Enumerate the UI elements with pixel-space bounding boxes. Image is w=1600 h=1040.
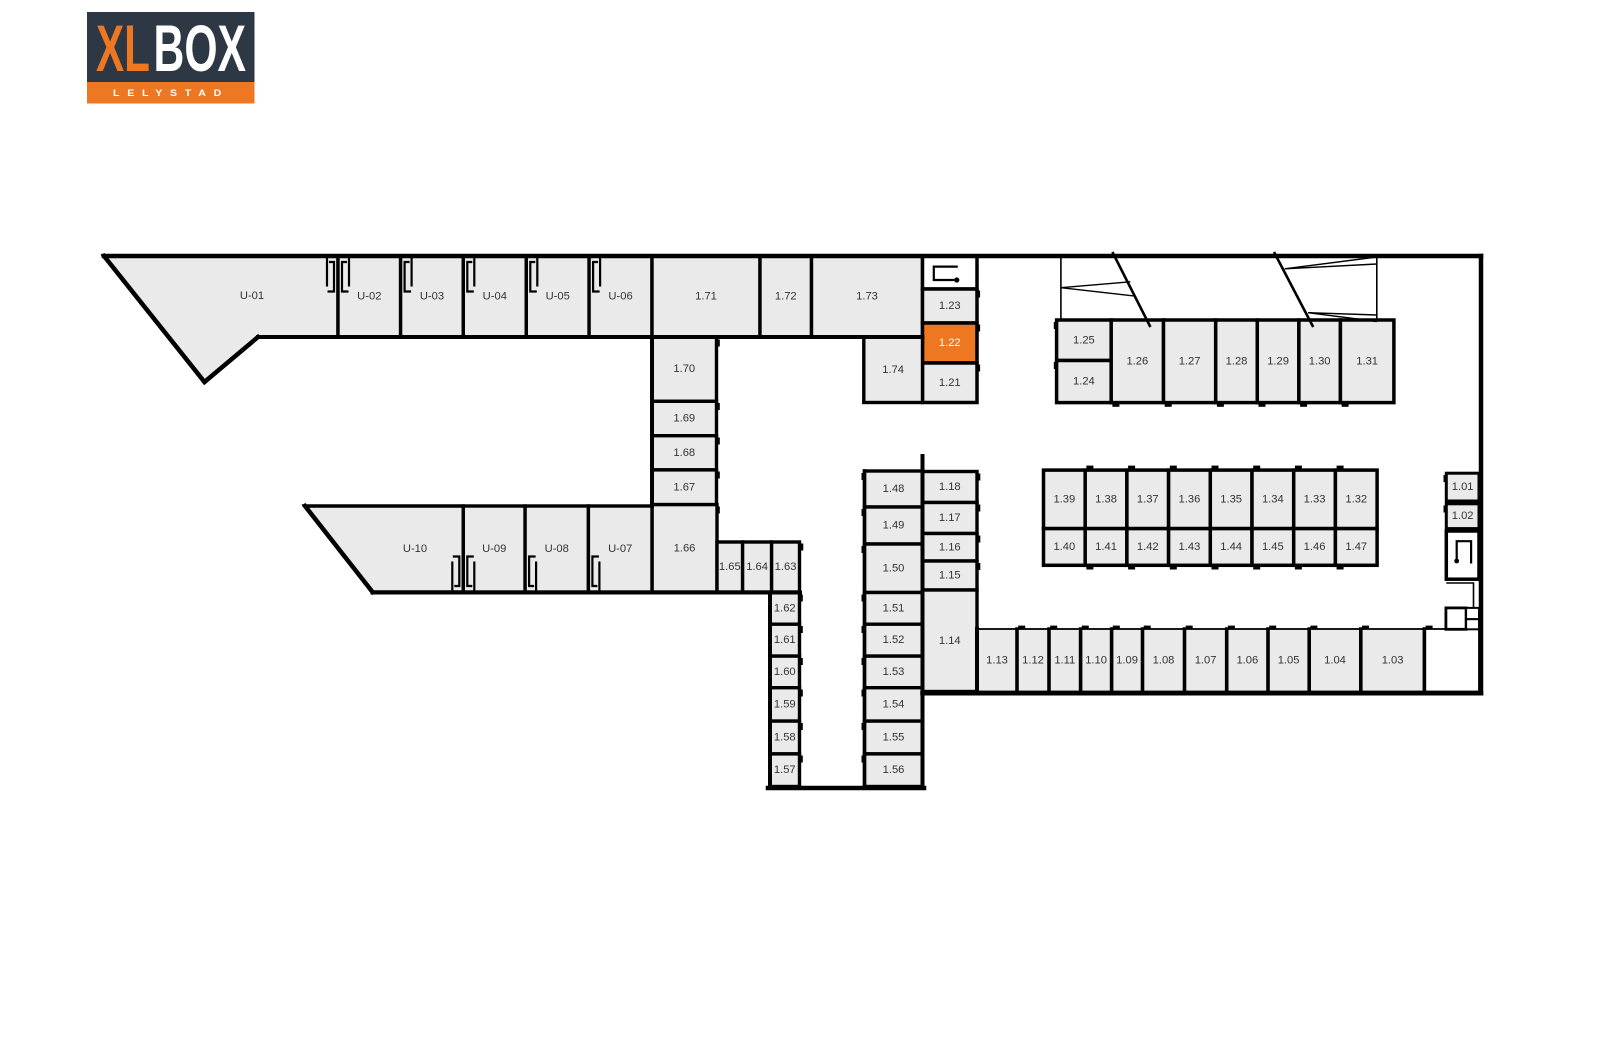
svg-text:1.14: 1.14 <box>939 635 961 647</box>
svg-text:1.64: 1.64 <box>746 561 768 573</box>
svg-text:1.01: 1.01 <box>1452 481 1474 493</box>
svg-text:1.02: 1.02 <box>1452 510 1474 522</box>
svg-text:1.53: 1.53 <box>883 666 905 678</box>
svg-text:1.25: 1.25 <box>1073 334 1095 346</box>
svg-text:1.42: 1.42 <box>1137 541 1159 553</box>
svg-text:1.11: 1.11 <box>1054 654 1075 666</box>
svg-text:1.59: 1.59 <box>774 698 796 710</box>
svg-text:1.70: 1.70 <box>673 363 695 375</box>
svg-text:1.26: 1.26 <box>1126 355 1148 367</box>
svg-text:1.32: 1.32 <box>1345 493 1367 505</box>
svg-text:1.52: 1.52 <box>883 634 905 646</box>
svg-text:1.18: 1.18 <box>939 481 961 493</box>
svg-text:1.35: 1.35 <box>1220 493 1242 505</box>
svg-text:1.71: 1.71 <box>695 291 717 303</box>
svg-text:1.10: 1.10 <box>1085 654 1107 666</box>
svg-text:1.58: 1.58 <box>774 732 796 744</box>
svg-text:1.68: 1.68 <box>673 447 695 459</box>
svg-text:1.54: 1.54 <box>883 698 905 710</box>
svg-text:U-09: U-09 <box>482 543 506 555</box>
svg-text:1.30: 1.30 <box>1309 355 1331 367</box>
svg-text:1.04: 1.04 <box>1324 654 1346 666</box>
svg-text:BOX: BOX <box>154 11 247 85</box>
svg-text:1.21: 1.21 <box>939 377 961 389</box>
svg-text:U-02: U-02 <box>357 291 381 303</box>
svg-text:1.73: 1.73 <box>856 291 878 303</box>
svg-text:1.17: 1.17 <box>939 512 961 524</box>
svg-text:U-08: U-08 <box>545 543 569 555</box>
svg-text:1.09: 1.09 <box>1116 654 1138 666</box>
svg-text:1.69: 1.69 <box>673 413 695 425</box>
svg-text:1.05: 1.05 <box>1278 654 1300 666</box>
svg-text:1.51: 1.51 <box>883 602 905 614</box>
svg-text:1.22: 1.22 <box>939 337 961 349</box>
svg-text:1.39: 1.39 <box>1053 493 1075 505</box>
svg-text:1.37: 1.37 <box>1137 493 1159 505</box>
svg-text:U-10: U-10 <box>403 543 427 555</box>
svg-text:U-01: U-01 <box>240 290 264 302</box>
svg-text:1.12: 1.12 <box>1022 654 1044 666</box>
svg-text:1.55: 1.55 <box>883 732 905 744</box>
svg-text:1.28: 1.28 <box>1226 355 1248 367</box>
svg-text:1.61: 1.61 <box>774 634 796 646</box>
svg-text:1.48: 1.48 <box>883 483 905 495</box>
svg-text:1.24: 1.24 <box>1073 376 1095 388</box>
svg-text:1.15: 1.15 <box>939 570 961 582</box>
svg-text:1.49: 1.49 <box>883 520 905 532</box>
svg-text:1.31: 1.31 <box>1356 355 1378 367</box>
svg-text:1.43: 1.43 <box>1179 541 1201 553</box>
svg-text:1.27: 1.27 <box>1179 355 1201 367</box>
svg-text:1.36: 1.36 <box>1179 493 1201 505</box>
svg-text:1.07: 1.07 <box>1195 654 1217 666</box>
svg-text:1.60: 1.60 <box>774 666 796 678</box>
svg-text:1.16: 1.16 <box>939 541 961 553</box>
svg-text:1.38: 1.38 <box>1095 493 1117 505</box>
svg-text:1.06: 1.06 <box>1236 654 1258 666</box>
svg-text:1.47: 1.47 <box>1345 541 1367 553</box>
svg-text:1.08: 1.08 <box>1153 654 1175 666</box>
svg-text:LELYSTAD: LELYSTAD <box>113 88 229 99</box>
svg-text:XL: XL <box>96 11 150 85</box>
svg-text:1.56: 1.56 <box>883 764 905 776</box>
svg-text:1.65: 1.65 <box>719 561 741 573</box>
svg-text:1.57: 1.57 <box>774 764 796 776</box>
svg-text:1.44: 1.44 <box>1220 541 1242 553</box>
svg-text:1.34: 1.34 <box>1262 493 1284 505</box>
svg-text:1.45: 1.45 <box>1262 541 1284 553</box>
svg-text:U-04: U-04 <box>483 291 507 303</box>
svg-text:1.72: 1.72 <box>775 291 797 303</box>
svg-text:1.74: 1.74 <box>882 364 904 376</box>
svg-text:1.62: 1.62 <box>774 603 796 615</box>
svg-text:1.03: 1.03 <box>1382 654 1404 666</box>
svg-text:U-06: U-06 <box>608 291 632 303</box>
svg-text:1.67: 1.67 <box>673 481 695 493</box>
svg-text:1.46: 1.46 <box>1304 541 1326 553</box>
svg-text:1.66: 1.66 <box>674 542 696 554</box>
svg-text:U-05: U-05 <box>546 291 570 303</box>
svg-text:1.40: 1.40 <box>1053 541 1075 553</box>
svg-text:U-03: U-03 <box>420 291 444 303</box>
svg-text:1.29: 1.29 <box>1267 355 1289 367</box>
svg-text:1.23: 1.23 <box>939 300 961 312</box>
svg-text:U-07: U-07 <box>608 543 632 555</box>
svg-text:1.13: 1.13 <box>986 654 1008 666</box>
svg-text:1.33: 1.33 <box>1304 493 1326 505</box>
svg-text:1.63: 1.63 <box>775 561 797 573</box>
svg-text:1.50: 1.50 <box>883 562 905 574</box>
svg-text:1.41: 1.41 <box>1095 541 1117 553</box>
